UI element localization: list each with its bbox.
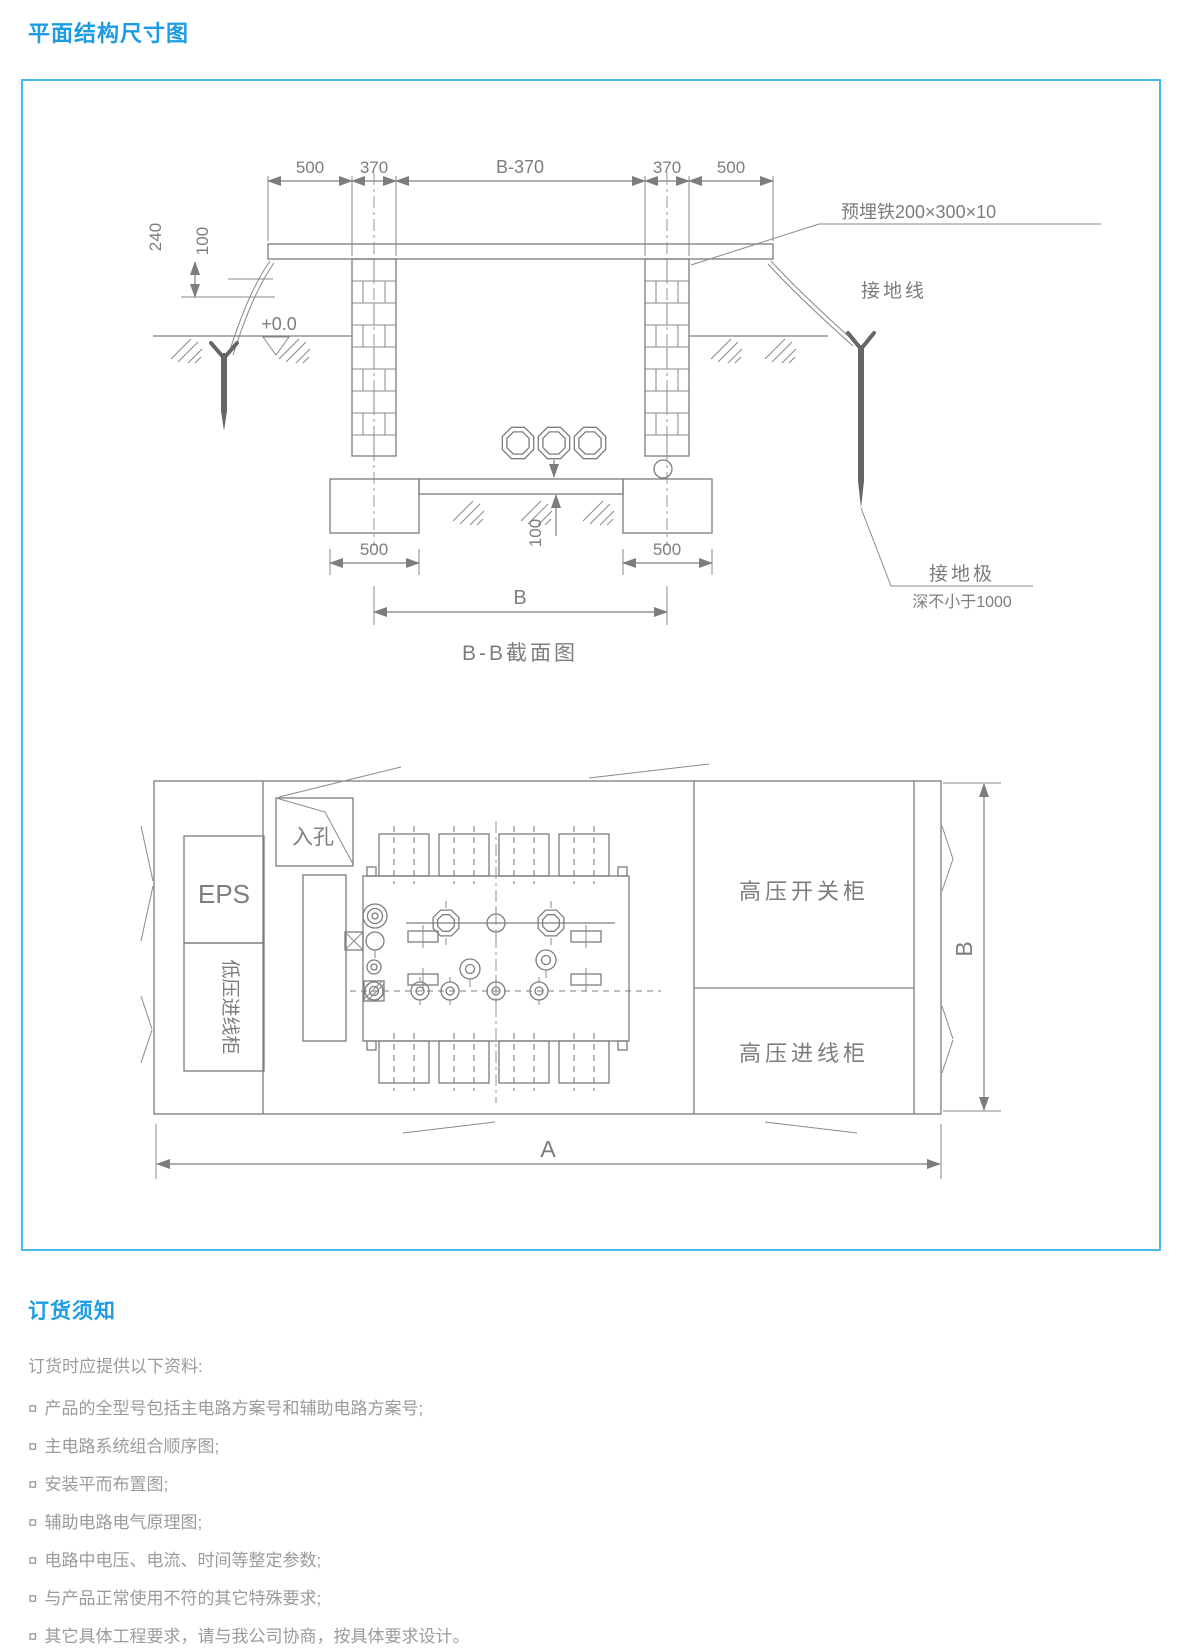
bullet-icon: ¤ (28, 1513, 37, 1532)
ordering-item-text: 电路中电压、电流、时间等整定参数; (44, 1551, 321, 1570)
bullet-icon: ¤ (28, 1589, 37, 1608)
ordering-item: ¤辅助电路电气原理图; (28, 1504, 469, 1542)
ordering-item: ¤与产品正常使用不符的其它特殊要求; (28, 1580, 469, 1618)
ground-rod-left (211, 343, 237, 431)
ordering-item: ¤其它具体工程要求，请与我公司协商，按具体要求设计。 (28, 1618, 469, 1650)
ordering-item-text: 与产品正常使用不符的其它特殊要求; (44, 1589, 321, 1608)
dim-bottom-500-left: 500 (360, 540, 388, 559)
ordering-item-text: 安装平而布置图; (44, 1475, 168, 1494)
bullet-icon: ¤ (28, 1627, 37, 1646)
dim-span-b: B (513, 587, 526, 609)
dim-bottom-500-right: 500 (653, 540, 681, 559)
level-label: +0.0 (261, 314, 297, 334)
drawing-frame: 500 370 B-370 370 500 (21, 79, 1161, 1251)
ordering-item-text: 主电路系统组合顺序图; (44, 1437, 219, 1456)
label-hv-switchgear: 高压开关柜 (739, 879, 869, 904)
plan-dim-a: A (540, 1136, 556, 1162)
dim-top-b370: B-370 (496, 157, 544, 177)
ordering-item-text: 辅助电路电气原理图; (44, 1513, 202, 1532)
plan-dim-b: B (951, 941, 977, 956)
ordering-item: ¤安装平而布置图; (28, 1466, 469, 1504)
label-lv-incoming: 低压进线柜 (219, 959, 241, 1054)
note-embedded-plate: 预埋铁200×300×10 (841, 202, 996, 222)
ordering-intro: 订货时应提供以下资料: (28, 1352, 203, 1377)
ordering-list: ¤产品的全型号包括主电路方案号和辅助电路方案号; ¤主电路系统组合顺序图; ¤安… (28, 1390, 469, 1650)
ordering-heading: 订货须知 (28, 1295, 116, 1325)
dim-top-500-left: 500 (296, 158, 324, 177)
plan-view-drawing: EPS 低压进线柜 入孔 (141, 764, 1001, 1179)
ordering-item: ¤电路中电压、电流、时间等整定参数; (28, 1542, 469, 1580)
ordering-item-text: 产品的全型号包括主电路方案号和辅助电路方案号; (44, 1399, 423, 1418)
label-manhole: 入孔 (292, 826, 334, 849)
note-ground-wire: 接地线 (861, 280, 927, 302)
dim-top-500-right: 500 (717, 158, 745, 177)
bullet-icon: ¤ (28, 1551, 37, 1570)
dim-bed-100: 100 (526, 519, 545, 547)
label-hv-incoming: 高压进线柜 (739, 1041, 869, 1066)
dim-left-100: 100 (193, 227, 212, 255)
ordering-item: ¤产品的全型号包括主电路方案号和辅助电路方案号; (28, 1390, 469, 1428)
bullet-icon: ¤ (28, 1475, 37, 1494)
note-ground-rod-depth: 深不小于1000 (912, 593, 1012, 611)
bullet-icon: ¤ (28, 1437, 37, 1456)
ground-rod-right (848, 333, 874, 508)
section-view-drawing: 500 370 B-370 370 500 (146, 157, 1101, 665)
valve-symbol (345, 932, 363, 950)
section-caption: B-B截面图 (462, 642, 578, 665)
bullet-icon: ¤ (28, 1399, 37, 1418)
dim-left-240: 240 (146, 223, 165, 251)
label-eps: EPS (198, 879, 250, 909)
ordering-item: ¤主电路系统组合顺序图; (28, 1428, 469, 1466)
technical-drawing: 500 370 B-370 370 500 (23, 81, 1155, 1245)
note-ground-rod: 接地极 (929, 563, 995, 585)
page: 平面结构尺寸图 (0, 0, 1191, 1650)
ordering-item-text: 其它具体工程要求，请与我公司协商，按具体要求设计。 (44, 1627, 469, 1646)
page-title: 平面结构尺寸图 (28, 16, 189, 48)
